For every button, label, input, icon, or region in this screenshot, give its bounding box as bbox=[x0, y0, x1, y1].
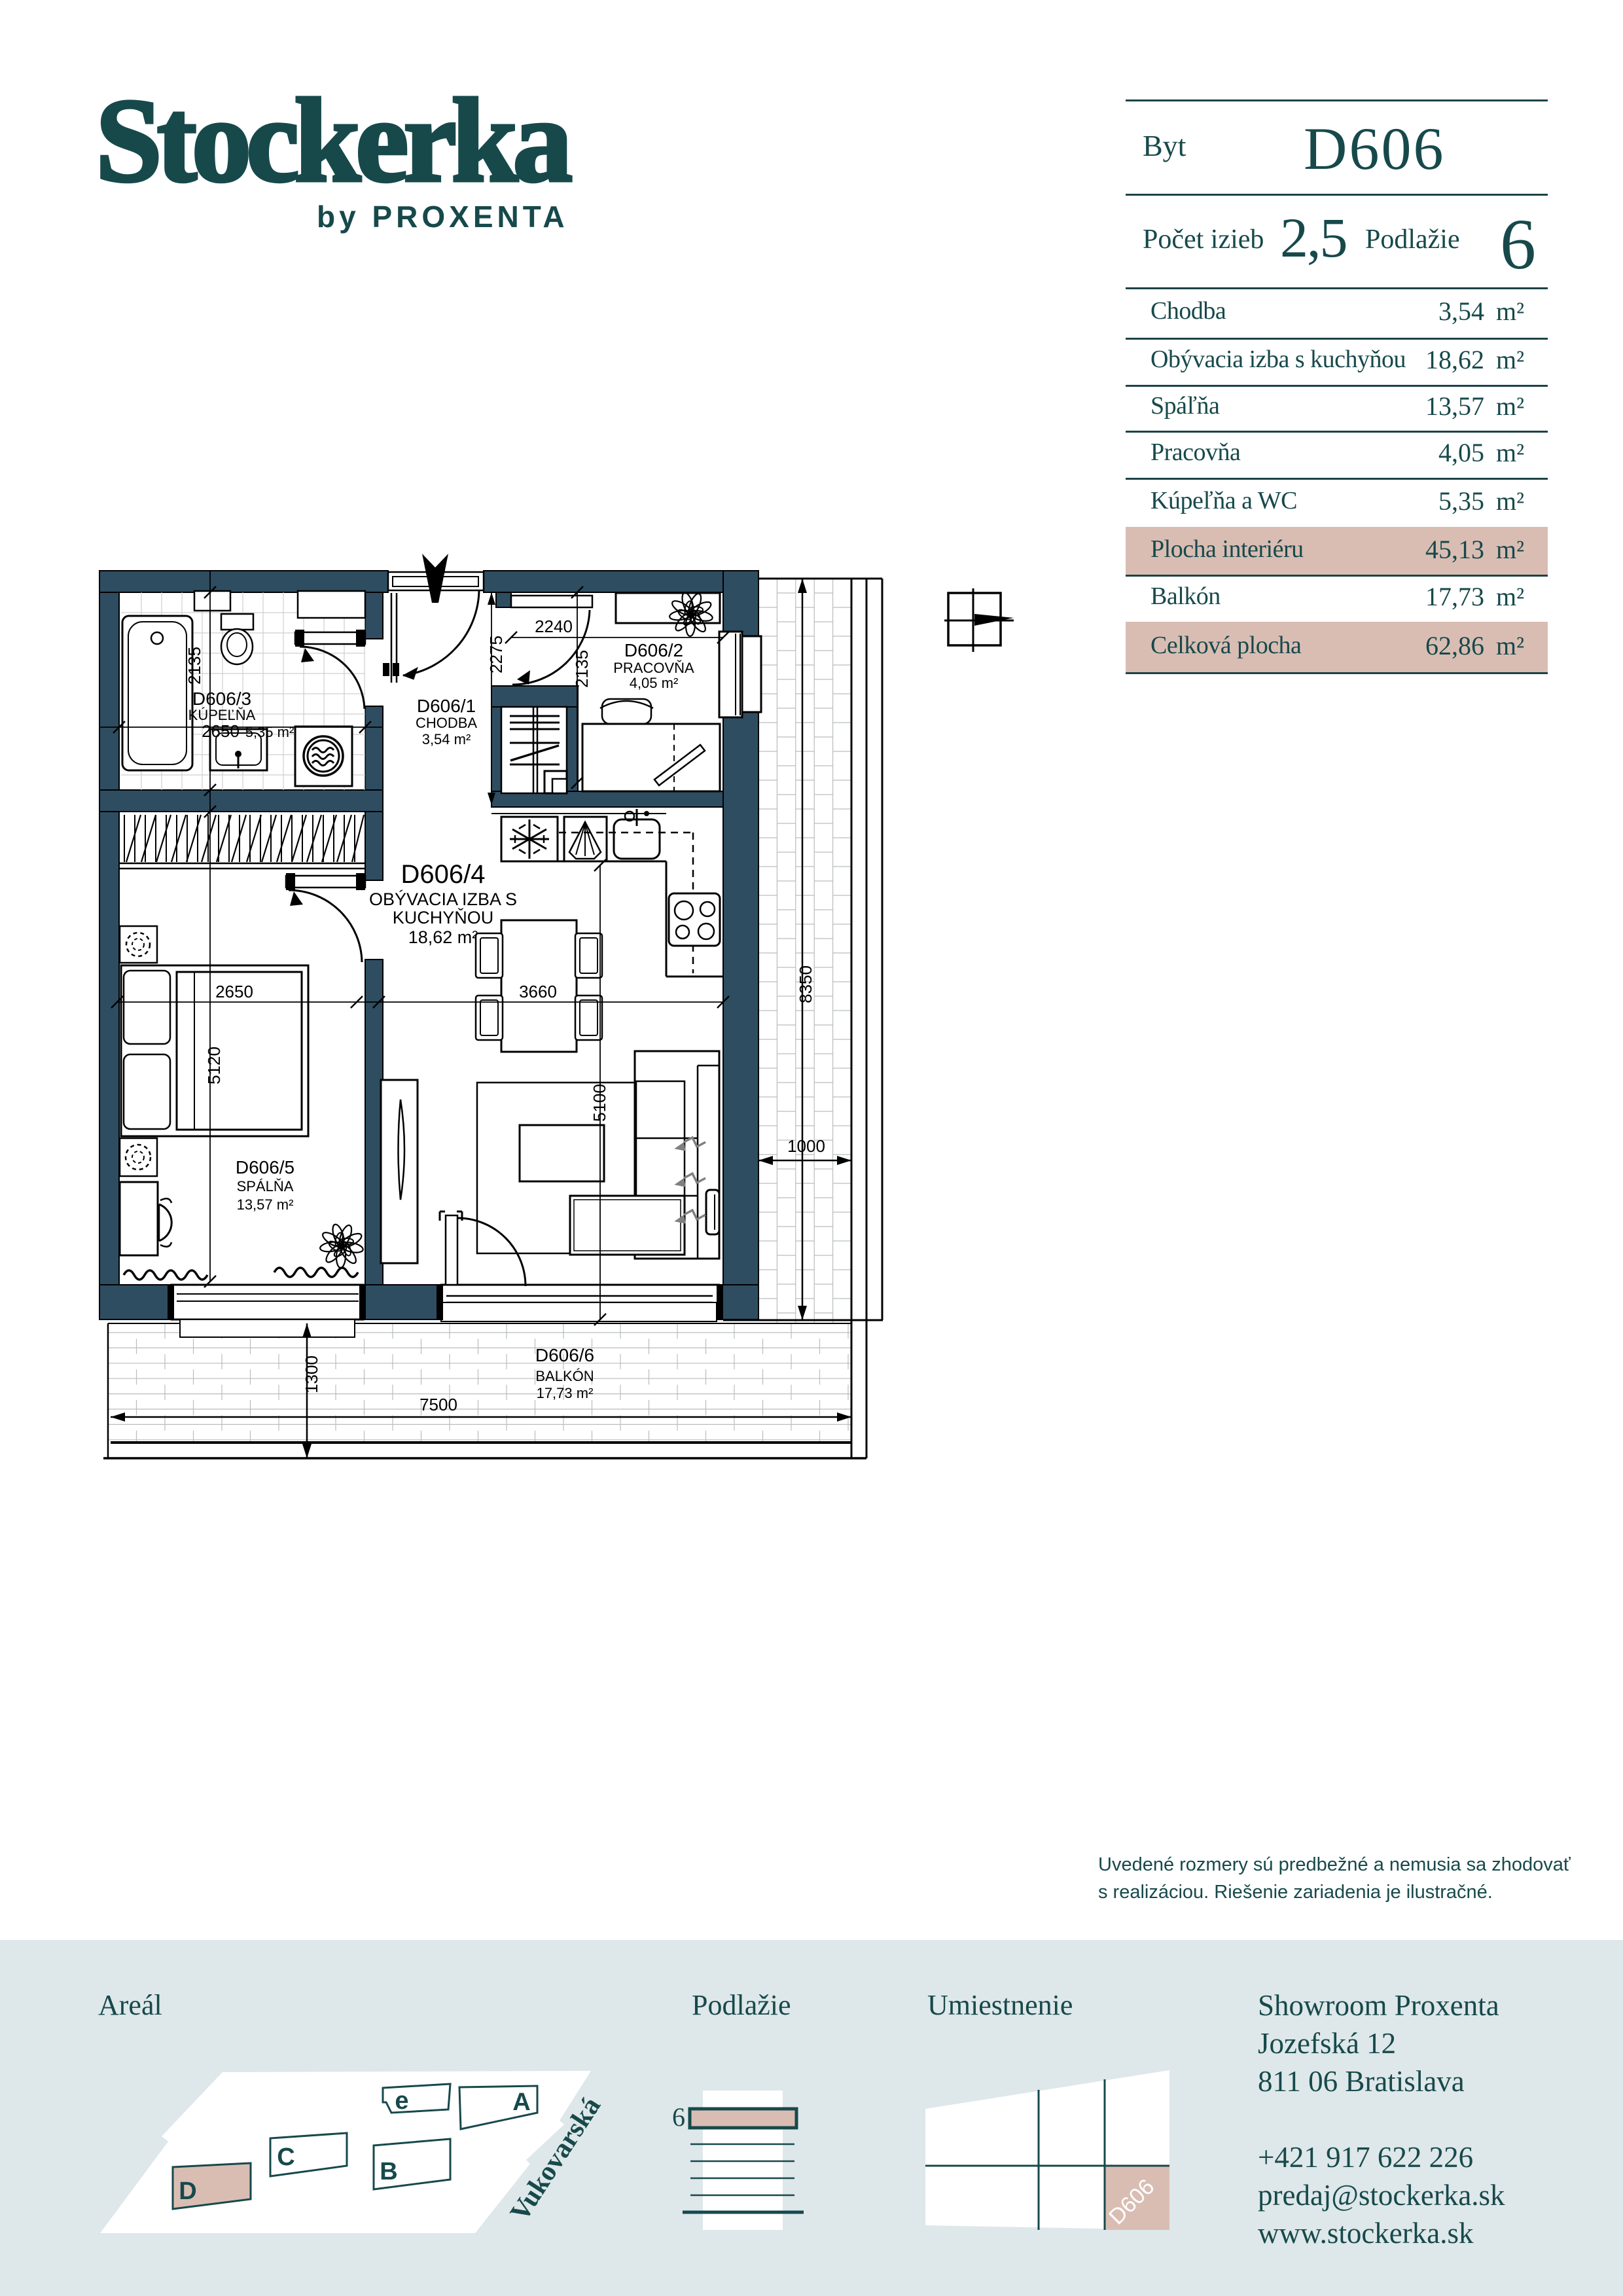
svg-text:D606/3: D606/3 bbox=[192, 689, 251, 709]
svg-text:D606/6: D606/6 bbox=[535, 1345, 594, 1365]
svg-text:5100: 5100 bbox=[590, 1084, 609, 1122]
svg-text:SPÁLŇA: SPÁLŇA bbox=[237, 1178, 294, 1194]
svg-text:1300: 1300 bbox=[302, 1355, 321, 1393]
svg-text:17,73 m²: 17,73 m² bbox=[537, 1385, 594, 1401]
svg-text:D: D bbox=[179, 2178, 196, 2205]
svg-text:D606/5: D606/5 bbox=[236, 1157, 294, 1177]
svg-text:2135: 2135 bbox=[572, 650, 592, 688]
svg-text:2240: 2240 bbox=[535, 617, 573, 636]
svg-text:2135: 2135 bbox=[185, 647, 204, 685]
svg-text:D606/2: D606/2 bbox=[624, 640, 683, 660]
svg-text:3660: 3660 bbox=[519, 982, 557, 1001]
svg-text:CHODBA: CHODBA bbox=[416, 715, 477, 731]
svg-text:5120: 5120 bbox=[204, 1047, 224, 1085]
svg-text:5,35 m²: 5,35 m² bbox=[245, 724, 294, 740]
svg-text:1000: 1000 bbox=[787, 1136, 825, 1156]
svg-text:KUCHYŇOU: KUCHYŇOU bbox=[393, 907, 494, 927]
svg-text:B: B bbox=[380, 2158, 397, 2185]
svg-text:2650: 2650 bbox=[215, 982, 253, 1001]
svg-text:13,57 m²: 13,57 m² bbox=[237, 1196, 294, 1213]
svg-text:7500: 7500 bbox=[419, 1395, 457, 1414]
svg-text:BALKÓN: BALKÓN bbox=[535, 1368, 594, 1384]
svg-text:e: e bbox=[395, 2087, 408, 2115]
svg-text:OBÝVACIA IZBA S: OBÝVACIA IZBA S bbox=[369, 889, 517, 909]
svg-text:6: 6 bbox=[672, 2102, 685, 2132]
svg-text:A: A bbox=[512, 2089, 530, 2116]
svg-text:2650: 2650 bbox=[202, 721, 240, 741]
svg-text:3,54 m²: 3,54 m² bbox=[422, 731, 471, 747]
svg-text:D606/1: D606/1 bbox=[417, 696, 476, 716]
svg-text:18,62 m²: 18,62 m² bbox=[408, 927, 478, 947]
svg-text:PRACOVŇA: PRACOVŇA bbox=[613, 660, 694, 676]
svg-text:4,05 m²: 4,05 m² bbox=[630, 675, 679, 691]
svg-text:8350: 8350 bbox=[796, 965, 815, 1003]
svg-text:2275: 2275 bbox=[486, 636, 506, 673]
svg-text:C: C bbox=[277, 2144, 294, 2171]
svg-text:D606/4: D606/4 bbox=[401, 860, 486, 889]
